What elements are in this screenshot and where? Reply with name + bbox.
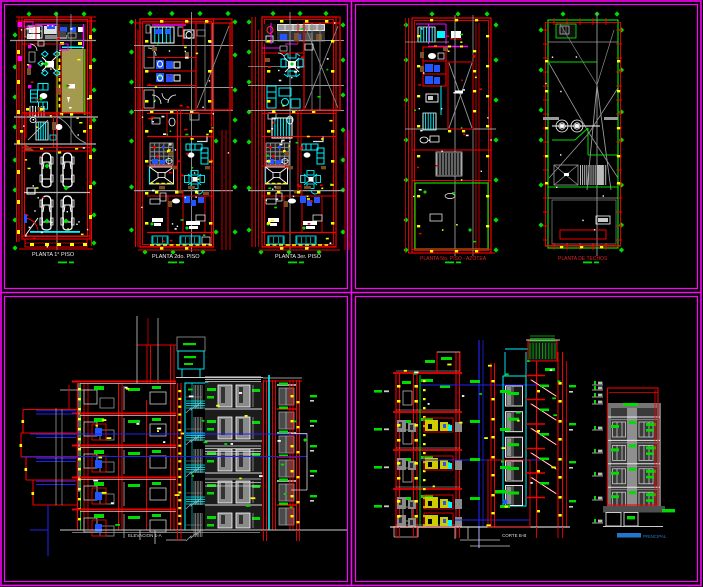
svg-text:PLANTA 5to. PISO - AZOTEA: PLANTA 5to. PISO - AZOTEA (420, 256, 487, 262)
svg-text:PRINCIPAL: PRINCIPAL (643, 534, 667, 539)
svg-text:PLANTA 1° PISO: PLANTA 1° PISO (32, 252, 75, 258)
svg-text:PLANTA 3er. PISO: PLANTA 3er. PISO (275, 254, 322, 260)
svg-text:ELEVACION 1-A: ELEVACION 1-A (128, 533, 162, 538)
svg-text:PLANTA 2do. PISO: PLANTA 2do. PISO (152, 254, 200, 260)
svg-text:CORTE B-B: CORTE B-B (502, 533, 526, 538)
svg-text:PLANTA DE TECHOS: PLANTA DE TECHOS (558, 256, 608, 262)
